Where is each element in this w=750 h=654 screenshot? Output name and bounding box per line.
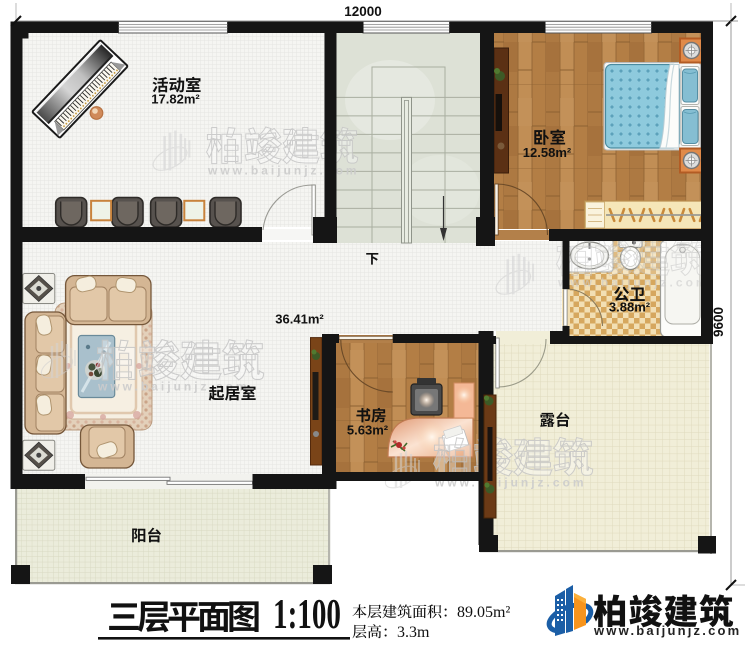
svg-text:12.58m²: 12.58m² xyxy=(523,145,572,160)
svg-text:9600: 9600 xyxy=(711,307,726,337)
svg-text:89.05m²: 89.05m² xyxy=(457,604,510,621)
svg-text:www.baijunjz.com: www.baijunjz.com xyxy=(593,623,741,638)
svg-text:12000: 12000 xyxy=(344,4,382,19)
svg-text:36.41m²: 36.41m² xyxy=(275,312,324,327)
svg-text:www.baijunjz.com: www.baijunjz.com xyxy=(557,276,710,290)
svg-text:3.3m: 3.3m xyxy=(397,624,430,641)
svg-text:3.88m²: 3.88m² xyxy=(609,300,651,315)
svg-text:www.baijunjz.com: www.baijunjz.com xyxy=(207,164,360,178)
svg-text:5.63m²: 5.63m² xyxy=(347,423,389,438)
svg-text:1:100: 1:100 xyxy=(273,592,341,638)
svg-text:17.82m²: 17.82m² xyxy=(151,92,200,107)
